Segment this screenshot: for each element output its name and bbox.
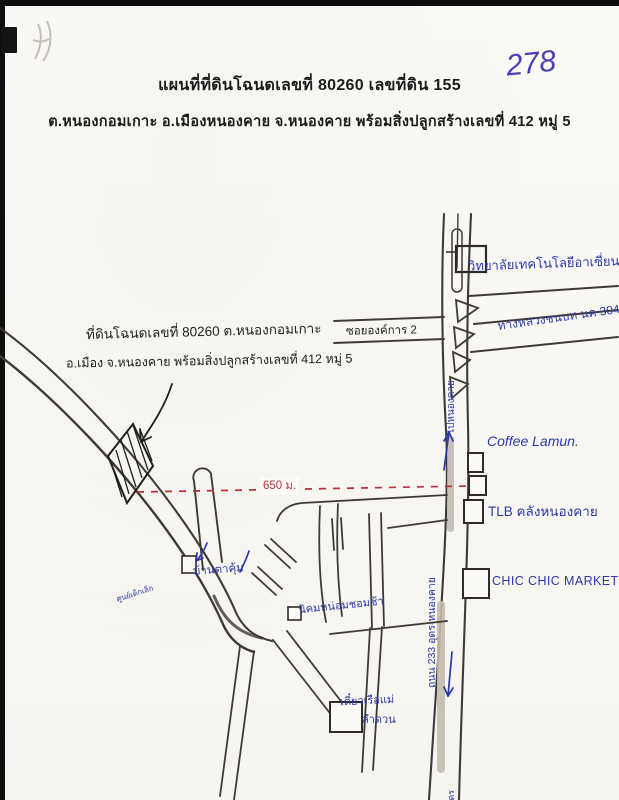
main-road-median: [437, 229, 462, 773]
label-main-road: ถนน 233 อุดร-หนองคาย: [423, 577, 440, 688]
label-noodle-line2: ลำดวน: [362, 710, 396, 728]
tlb-building: [464, 500, 483, 523]
label-noodle-line1: เตี๋ยวเรือแม่: [340, 690, 395, 711]
scanned-land-map-page: แผนที่ที่ดินโฉนดเลขที่ 80260 เลขที่ดิน 1…: [0, 0, 619, 800]
annotation-arrow: [140, 384, 172, 442]
measurement-line: [137, 486, 470, 492]
label-to-nongkhai: ไปหนองคาย: [444, 380, 459, 434]
coffee-building-1: [468, 453, 483, 472]
coffee-building-2: [469, 476, 486, 495]
label-soi: ซอยองค์การ 2: [346, 321, 417, 340]
market-building: [463, 569, 489, 598]
label-coffee: Coffee Lamun.: [487, 433, 579, 449]
label-to-udon-partial: อุดร: [444, 790, 458, 800]
pencil-scribble: [33, 21, 50, 61]
label-tlb: TLB คลังหนองคาย: [488, 500, 598, 522]
header-subtitle: ต.หนองกอมเกาะ อ.เมืองหนองคาย จ.หนองคาย พ…: [0, 110, 619, 133]
distance-label: 650 ม.: [260, 477, 299, 495]
handwritten-page-number: 278: [504, 44, 557, 83]
label-ban-ta-khum: บ้านตาคุ้ม: [192, 559, 244, 581]
label-market: CHIC CHIC MARKET: [492, 574, 619, 588]
